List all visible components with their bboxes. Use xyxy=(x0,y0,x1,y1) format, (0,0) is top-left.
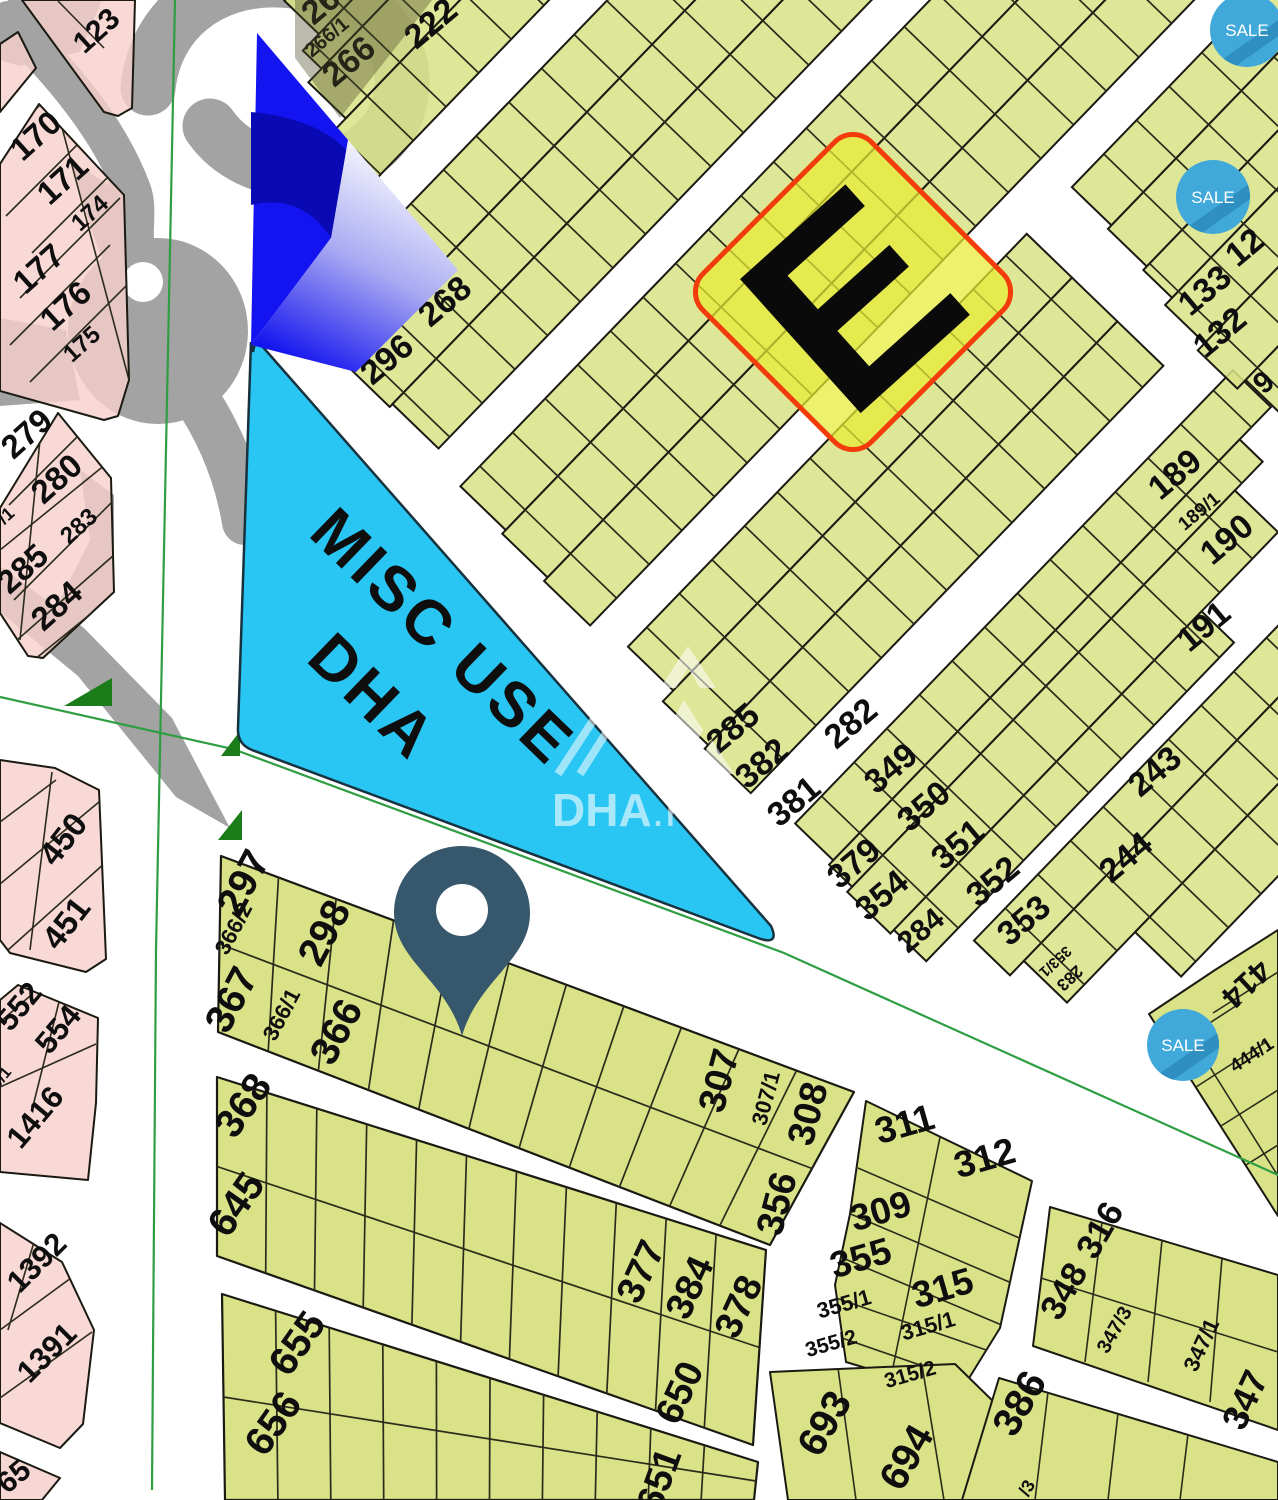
svg-text:SALE: SALE xyxy=(1191,188,1234,207)
svg-text:DHA.Pk: DHA.Pk xyxy=(552,784,719,836)
svg-text:SALE: SALE xyxy=(1161,1036,1204,1055)
svg-text:SALE: SALE xyxy=(1225,21,1268,40)
